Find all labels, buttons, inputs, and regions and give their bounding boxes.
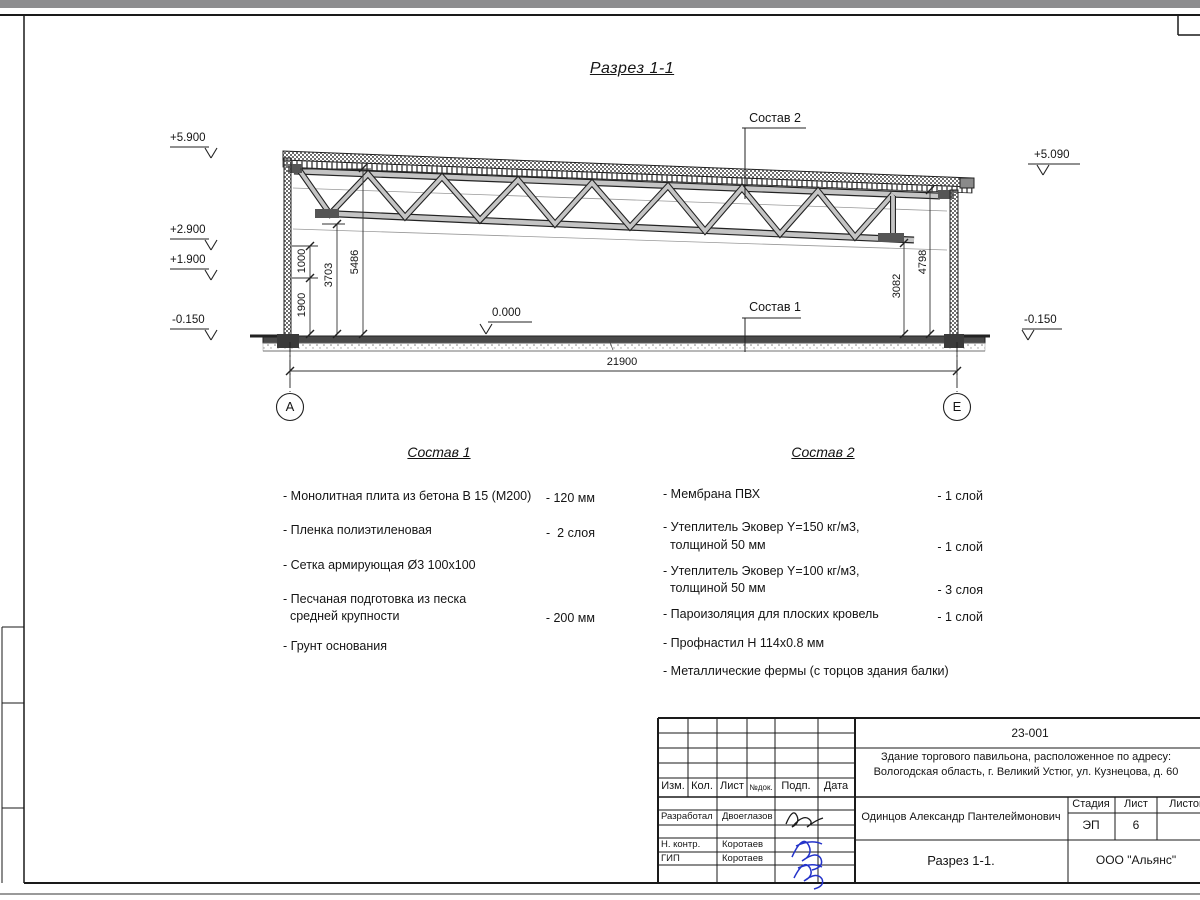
dim-label-3703: 3703 — [323, 253, 335, 297]
callout-sostav1: Состав 1 — [749, 300, 801, 314]
elevation-label-1900: +1.900 — [170, 254, 206, 266]
titleblock-name-gip: Коротаев — [722, 853, 763, 864]
titleblock-col-kol: Кол. — [691, 780, 713, 792]
elevation-label-left-minus0150: -0.150 — [172, 314, 205, 326]
drawing-title: Разрез 1-1 — [590, 60, 674, 78]
titleblock-stage-label: Стадия — [1072, 798, 1110, 810]
titleblock-col-data: Дата — [824, 780, 848, 792]
axis-marks — [277, 342, 971, 421]
list-item: - Сетка армирующая Ø3 100х100 — [283, 557, 595, 574]
list-item: - Утеплитель Эковер Y=150 кг/м3, толщино… — [663, 519, 983, 554]
list-item: - Металлические фермы (с торцов здания б… — [663, 663, 983, 680]
foundation-right — [944, 334, 964, 348]
elevation-label-5900: +5.900 — [170, 132, 206, 144]
titleblock-company: ООО "Альянс" — [1096, 853, 1176, 867]
composition-list-2: Состав 2 - Мембрана ПВХ - 1 слой - Утепл… — [663, 444, 983, 680]
elevation-label-2900: +2.900 — [170, 224, 206, 236]
truss-support-left — [315, 209, 339, 218]
titleblock-col-ndok: №док. — [749, 783, 772, 792]
elevation-label-right-minus0150: -0.150 — [1024, 314, 1057, 326]
titleblock-col-list: Лист — [720, 780, 744, 792]
titleblock-sheet-title: Разрез 1-1. — [927, 853, 994, 868]
wall-left — [284, 158, 291, 338]
list-item: - Грунт основания — [283, 638, 595, 655]
titleblock-sheets-label: Листов — [1169, 798, 1200, 810]
titleblock-sheet-label: Лист — [1124, 798, 1148, 810]
elevation-label-zero: 0.000 — [492, 307, 521, 319]
list-item: - Утеплитель Эковер Y=100 кг/м3, толщино… — [663, 563, 983, 598]
elevation-label-5090: +5.090 — [1034, 149, 1070, 161]
titleblock-object-line1: Здание торгового павильона, расположенно… — [881, 751, 1171, 763]
titleblock-role-developer: Разработал — [661, 811, 713, 822]
titleblock-chief: Одинцов Александр Пантелеймонович — [861, 811, 1060, 823]
titleblock-role-ncontrol: Н. контр. — [661, 839, 700, 850]
roof-end-cap — [960, 178, 974, 188]
truss-support-right — [878, 233, 904, 242]
list-item: - Профнастил Н 114х0.8 мм — [663, 635, 983, 652]
titleblock-sheet-number: 6 — [1133, 818, 1140, 832]
titleblock-name-ncontrol: Коротаев — [722, 839, 763, 850]
composition2-title: Состав 2 — [663, 444, 983, 460]
dim-label-4798: 4798 — [917, 240, 929, 284]
titleblock-col-podp: Подп. — [781, 780, 810, 792]
dim-label-5486: 5486 — [349, 240, 361, 284]
drawing-sheet: { "section": { "title": "Разрез 1-1", "e… — [0, 0, 1200, 900]
dim-label-1900: 1900 — [296, 283, 308, 327]
composition1-title: Состав 1 — [283, 444, 595, 460]
floor-slab-concrete — [263, 336, 985, 343]
titleblock-role-gip: ГИП — [661, 853, 680, 864]
axis-bubble-a: А — [286, 399, 295, 414]
titleblock-stage-value: ЭП — [1082, 818, 1099, 832]
dim-label-total: 21900 — [607, 356, 638, 368]
titleblock-doc-number: 23-001 — [1011, 726, 1048, 740]
titleblock-object-line2: Вологодская область, г. Великий Устюг, у… — [874, 766, 1179, 778]
callout-leaders — [742, 128, 806, 352]
titleblock-col-izm: Изм. — [661, 780, 685, 792]
floor-sand-layer — [263, 343, 985, 351]
list-item: - Пленка полиэтиленовая - 2 слоя — [283, 522, 595, 539]
list-item: - Мембрана ПВХ - 1 слой — [663, 486, 983, 503]
foundation-left — [277, 334, 299, 348]
axis-bubble-e: Е — [953, 399, 962, 414]
dim-label-1000: 1000 — [296, 239, 308, 283]
titleblock-name-developer: Двоеглазов — [722, 811, 773, 822]
list-item: - Монолитная плита из бетона В 15 (М200)… — [283, 488, 595, 505]
list-item: - Песчаная подготовка из песка средней к… — [283, 591, 595, 626]
composition-list-1: Состав 1 - Монолитная плита из бетона В … — [283, 444, 595, 656]
callout-sostav2: Состав 2 — [749, 111, 801, 125]
list-item: - Пароизоляция для плоских кровель - 1 с… — [663, 606, 983, 623]
wall-right — [950, 190, 958, 338]
dim-label-3082: 3082 — [891, 264, 903, 308]
